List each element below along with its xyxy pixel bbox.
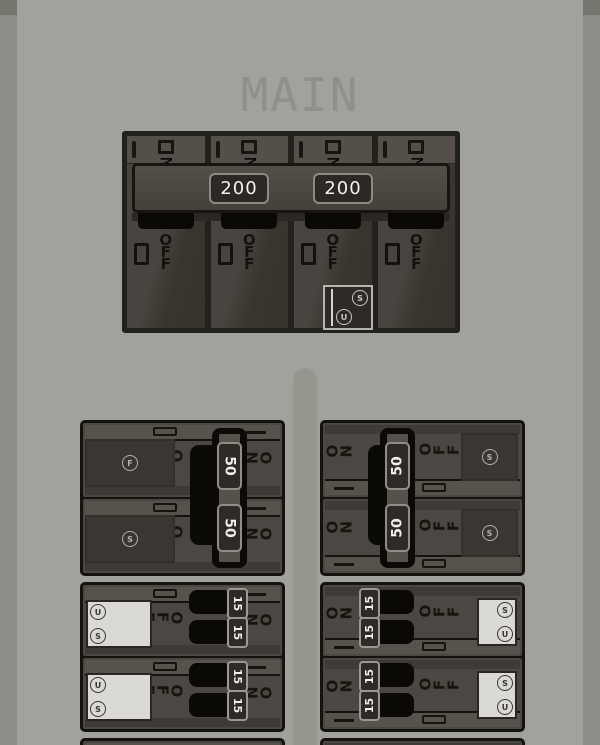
molded-letter: N: [340, 682, 354, 693]
amp-rating-text: 15: [231, 596, 244, 611]
main-rating-badge: 200: [209, 173, 269, 204]
vent-slot: [422, 715, 446, 724]
cert-mark: S: [352, 290, 368, 306]
cert-mark: S: [497, 675, 513, 691]
molded-letter: F: [244, 258, 254, 270]
breaker-row: OFFONSU1515: [323, 658, 522, 729]
molding-square: [134, 243, 149, 265]
breaker-unit-double: FFONOFFFONOS5050: [80, 420, 285, 576]
handle-slot: [138, 213, 194, 229]
breaker-row: OFFONS: [323, 423, 522, 497]
molding-dash: [334, 719, 354, 722]
amp-rating-label[interactable]: 50: [385, 504, 410, 552]
on-label: ON: [327, 607, 352, 621]
breaker-unit-partial: [320, 738, 525, 745]
cert-mark: U: [336, 309, 352, 325]
main-off-label: OFF: [159, 234, 172, 270]
amp-rating-label[interactable]: 50: [217, 442, 242, 490]
molding-square: [218, 243, 233, 265]
amp-rating-text: 15: [231, 625, 244, 640]
amp-rating-label[interactable]: 15: [359, 690, 380, 721]
breaker-row: [83, 741, 282, 745]
off-label: OFF: [420, 678, 459, 692]
cert-mark: S: [482, 525, 498, 541]
cert-panel: F: [85, 439, 175, 487]
main-off-label: OFF: [410, 234, 423, 270]
molding-square: [301, 243, 316, 265]
breaker-unit-tandem: FFONOUS1515FFONOUS1515: [80, 582, 285, 732]
amp-rating-text: 15: [363, 698, 376, 713]
breaker-row: OFFONSU1515: [323, 585, 522, 656]
molded-letter: N: [340, 447, 354, 458]
cert-mark: F: [122, 455, 138, 471]
cert-mark: S: [497, 602, 513, 618]
amp-rating-label[interactable]: 15: [227, 588, 248, 619]
molding-dash: [246, 666, 266, 669]
cert-panel: SU: [477, 598, 517, 646]
amp-rating-text: 50: [221, 456, 237, 475]
pole-top-strip: N: [211, 136, 289, 164]
breaker-row: FFONOUS1515: [83, 585, 282, 656]
vent-slot: [422, 642, 446, 651]
breaker-top-strip: [325, 479, 520, 495]
amp-rating-text: 15: [231, 698, 244, 713]
molded-letter: O: [170, 685, 184, 696]
breaker-row: FFONOF: [83, 423, 282, 497]
cert-panel: S: [461, 433, 518, 481]
amp-rating-label[interactable]: 15: [227, 617, 248, 648]
on-label: NO: [246, 450, 271, 464]
amp-rating-text: 50: [389, 456, 405, 475]
breaker-column-left: FFONOFFFONOS5050FFONOUS1515FFONOUS1515: [80, 420, 285, 745]
vent-slot: [153, 589, 177, 598]
amp-rating-text: 50: [389, 518, 405, 537]
amp-rating-text: 15: [363, 669, 376, 684]
molding-dash: [246, 431, 266, 434]
panel-top-right-corner: [583, 0, 600, 15]
molding-dash: [246, 507, 266, 510]
cert-mark: U: [497, 699, 513, 715]
cert-mark: S: [482, 449, 498, 465]
handle-slot: [388, 213, 444, 229]
amp-rating-text: 15: [363, 625, 376, 640]
breaker-handle-tie[interactable]: 5050: [212, 428, 247, 568]
breaker-shade: [325, 660, 520, 669]
breaker-handle[interactable]: [376, 693, 414, 717]
vent-slot: [153, 503, 177, 512]
molding-dash: [334, 646, 354, 649]
amp-rating-label[interactable]: 15: [227, 690, 248, 721]
breaker-unit-partial: [80, 738, 285, 745]
molded-letter: F: [411, 258, 421, 270]
main-breaker-handle[interactable]: 200 200: [132, 163, 450, 213]
breaker-shade: [325, 587, 520, 596]
molded-letter: F: [447, 607, 461, 618]
off-label: OFF: [420, 443, 459, 457]
breaker-handle[interactable]: [376, 663, 414, 687]
pole-top-strip: N: [127, 136, 205, 164]
handle-slot: [305, 213, 361, 229]
panel-top-left-corner: [0, 0, 17, 15]
off-label: OFF: [420, 605, 459, 619]
molded-letter: O: [259, 452, 273, 463]
molded-letter: N: [340, 523, 354, 534]
on-label: ON: [327, 680, 352, 694]
breaker-row: FFONOS: [83, 499, 282, 573]
amp-rating-label[interactable]: 50: [217, 504, 242, 552]
breaker-handle[interactable]: [189, 590, 227, 614]
main-off-label: OFF: [326, 234, 339, 270]
on-label: ON: [327, 521, 352, 535]
cert-panel: SU: [477, 671, 517, 719]
cert-mark: U: [90, 604, 106, 620]
molding-tick: [383, 141, 387, 158]
cert-panel: US: [86, 600, 152, 648]
molded-letter: F: [161, 258, 171, 270]
on-label: ON: [327, 445, 352, 459]
molding-tick: [299, 141, 303, 158]
main-rating-badge: 200: [313, 173, 373, 204]
molded-letter: O: [259, 528, 273, 539]
off-label: OFF: [420, 519, 459, 533]
cert-panel: US: [86, 673, 152, 721]
cert-mark: S: [90, 701, 106, 717]
molded-letter: O: [259, 614, 273, 625]
cert-mark: U: [90, 677, 106, 693]
cert-panel: S: [85, 515, 175, 563]
cert-panel: S: [461, 509, 518, 557]
amp-rating-text: 15: [363, 596, 376, 611]
amp-rating-label[interactable]: 50: [385, 442, 410, 490]
amp-rating-text: 15: [231, 669, 244, 684]
breaker-unit-tandem: OFFONSU1515OFFONSU1515: [320, 582, 525, 732]
vent-slot: [422, 483, 446, 492]
letter-o-square: [158, 140, 174, 154]
pole-top-strip: N: [378, 136, 456, 164]
breaker-handle[interactable]: [189, 620, 227, 644]
amp-rating-label[interactable]: 15: [359, 588, 380, 619]
breaker-handle[interactable]: [189, 693, 227, 717]
molded-letter: F: [447, 521, 461, 532]
molding-square: [385, 243, 400, 265]
amp-rating-text: 50: [221, 518, 237, 537]
breaker-shade: [85, 562, 280, 571]
main-off-label: OFF: [243, 234, 256, 270]
molding-dash: [334, 563, 354, 566]
on-label: NO: [246, 526, 271, 540]
breaker-row: OFFONS: [323, 499, 522, 573]
cert-mark: S: [122, 531, 138, 547]
label-divider: [331, 289, 333, 326]
amp-rating-label[interactable]: 15: [359, 617, 380, 648]
molded-letter: O: [259, 687, 273, 698]
molding-tick: [132, 141, 136, 158]
molded-letter: F: [447, 680, 461, 691]
letter-o-square: [241, 140, 257, 154]
cert-mark: U: [497, 626, 513, 642]
molded-letter: O: [170, 612, 184, 623]
letter-o-square: [408, 140, 424, 154]
breaker-handle-tie[interactable]: 5050: [380, 428, 415, 568]
molding-tick: [216, 141, 220, 158]
breaker-row: FFONOUS1515: [83, 658, 282, 729]
vent-slot: [153, 662, 177, 671]
breaker-handle[interactable]: [376, 590, 414, 614]
letter-o-square: [325, 140, 341, 154]
molded-letter: F: [328, 258, 338, 270]
on-label: NO: [246, 685, 271, 699]
handle-slot: [221, 213, 277, 229]
center-rail: [293, 368, 317, 745]
amp-rating-label[interactable]: 15: [227, 661, 248, 692]
molding-dash: [334, 487, 354, 490]
molded-letter: N: [340, 609, 354, 620]
vent-slot: [422, 559, 446, 568]
breaker-unit-double: OFFONSOFFONS5050: [320, 420, 525, 576]
on-label: NO: [246, 612, 271, 626]
pole-top-strip: N: [294, 136, 372, 164]
breaker-handle[interactable]: [189, 663, 227, 687]
certification-label: S U: [323, 285, 373, 330]
breaker-row: [323, 741, 522, 745]
amp-rating-label[interactable]: 15: [359, 661, 380, 692]
vent-slot: [153, 427, 177, 436]
breaker-panel: MAIN NOFFNOFFNOFFNOFF 200 200 S U FFONOF…: [0, 0, 600, 745]
molded-letter: F: [447, 445, 461, 456]
breaker-shade: [85, 486, 280, 495]
main-breaker: NOFFNOFFNOFFNOFF 200 200 S U: [122, 131, 460, 333]
cert-mark: S: [90, 628, 106, 644]
breaker-top-strip: [325, 555, 520, 571]
molding-dash: [246, 593, 266, 596]
breaker-column-right: OFFONSOFFONS5050OFFONSU1515OFFONSU1515: [320, 420, 525, 745]
breaker-handle[interactable]: [376, 620, 414, 644]
panel-title: MAIN: [0, 68, 600, 122]
